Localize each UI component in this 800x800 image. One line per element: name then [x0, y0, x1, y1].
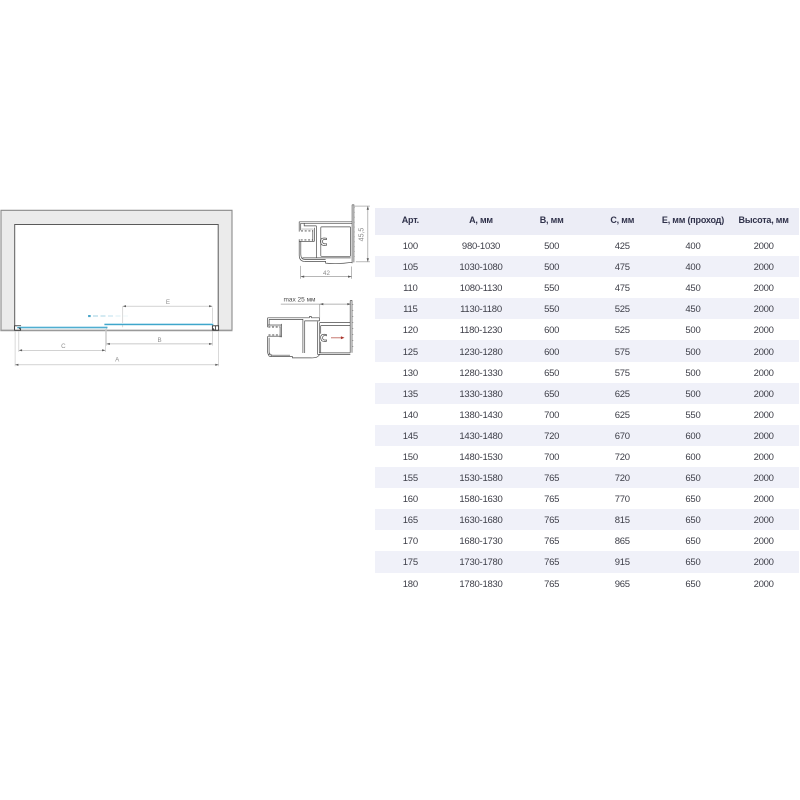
svg-text:B: B: [158, 337, 162, 344]
svg-text:max 25 мм: max 25 мм: [283, 297, 316, 304]
svg-text:E: E: [166, 299, 170, 306]
svg-text:42: 42: [323, 270, 330, 277]
svg-text:C: C: [61, 343, 66, 350]
svg-text:45,5: 45,5: [359, 228, 366, 242]
svg-text:A: A: [115, 357, 120, 364]
